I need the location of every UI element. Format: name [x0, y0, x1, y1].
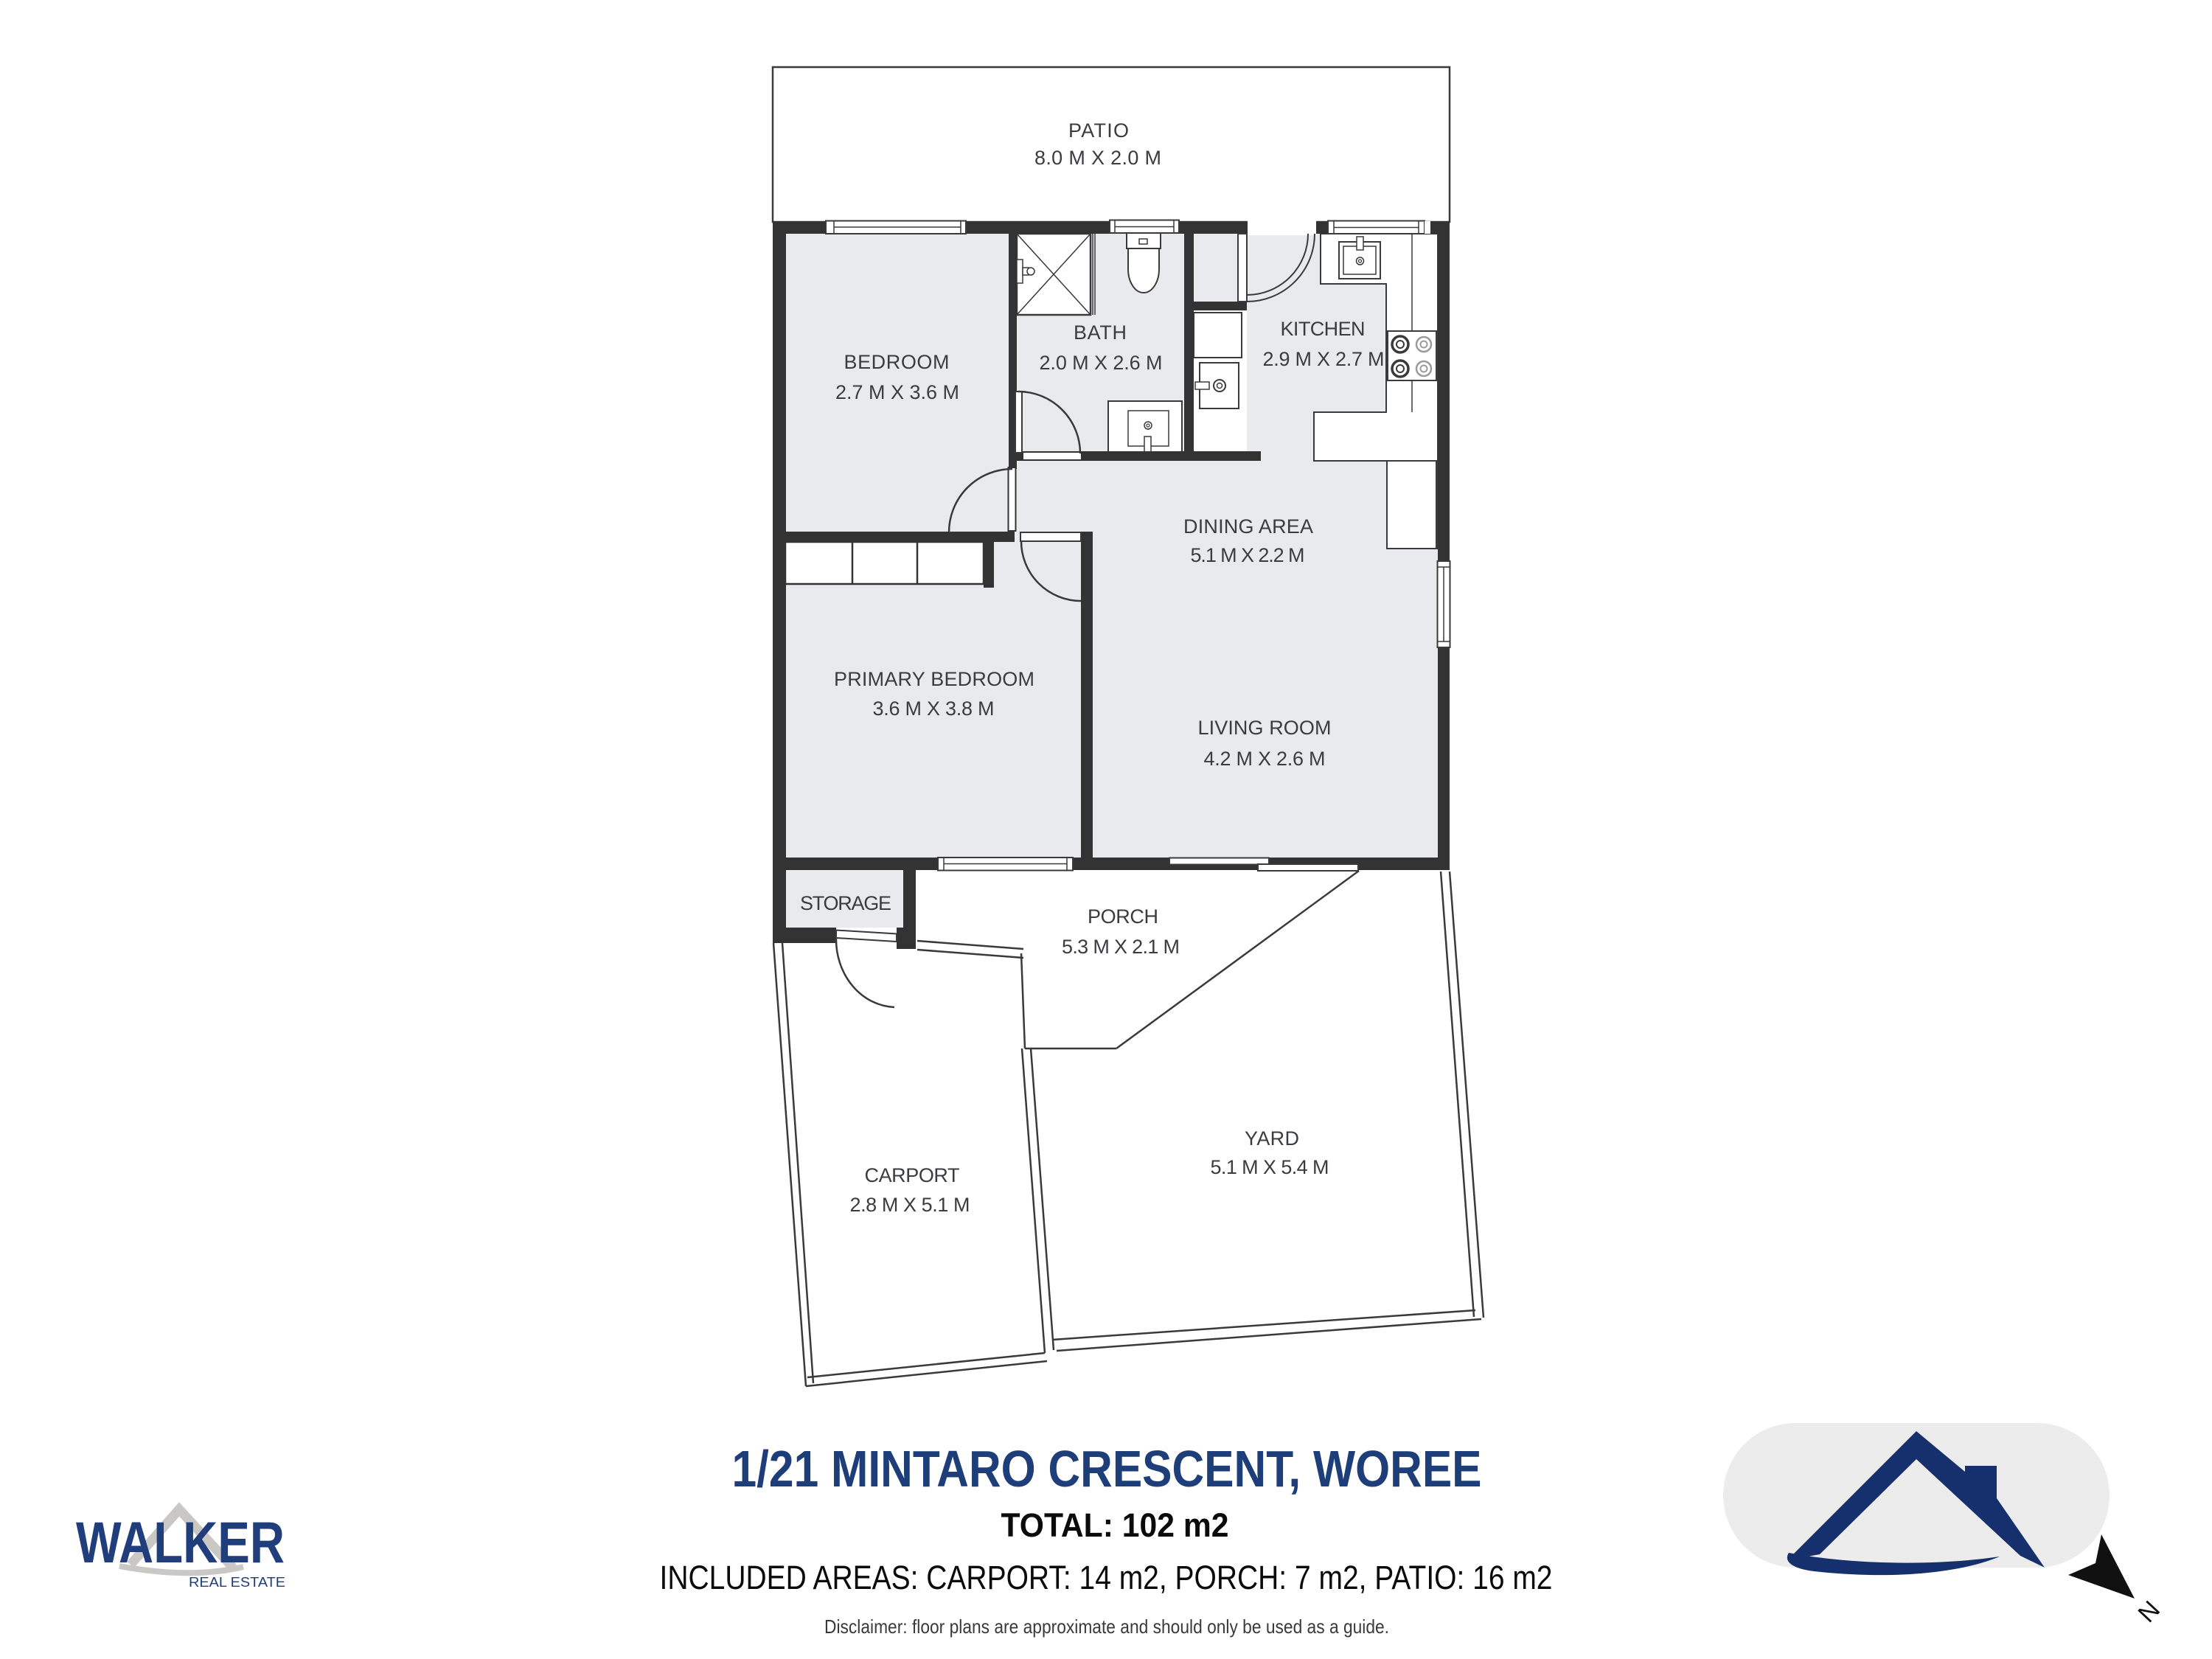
svg-text:REAL ESTATE: REAL ESTATE: [189, 1575, 285, 1590]
svg-text:YARD: YARD: [1245, 1127, 1299, 1150]
svg-text:2.9 M X 2.7 M: 2.9 M X 2.7 M: [1263, 348, 1385, 370]
svg-text:BEDROOM: BEDROOM: [844, 351, 950, 373]
svg-text:INCLUDED AREAS: CARPORT: 14 m2: INCLUDED AREAS: CARPORT: 14 m2, PORCH: 7…: [660, 1559, 1553, 1596]
svg-text:2.7 M X 3.6 M: 2.7 M X 3.6 M: [835, 381, 959, 403]
svg-text:KITCHEN: KITCHEN: [1281, 318, 1366, 340]
svg-text:2.8 M X 5.1 M: 2.8 M X 5.1 M: [850, 1194, 970, 1216]
svg-text:2.0 M X 2.6 M: 2.0 M X 2.6 M: [1040, 352, 1163, 374]
svg-text:WALKER: WALKER: [76, 1509, 285, 1575]
svg-text:STORAGE: STORAGE: [800, 892, 891, 914]
svg-text:TOTAL: 102 m2: TOTAL: 102 m2: [1001, 1506, 1229, 1544]
svg-text:4.2 M X 2.6 M: 4.2 M X 2.6 M: [1204, 748, 1326, 770]
svg-text:5.1 M X 2.2 M: 5.1 M X 2.2 M: [1191, 544, 1305, 566]
svg-text:5.3 M X 2.1 M: 5.3 M X 2.1 M: [1062, 936, 1180, 958]
svg-text:BATH: BATH: [1074, 321, 1127, 344]
svg-text:LIVING ROOM: LIVING ROOM: [1198, 717, 1332, 739]
svg-text:PRIMARY BEDROOM: PRIMARY BEDROOM: [834, 668, 1034, 690]
svg-text:DINING AREA: DINING AREA: [1183, 515, 1313, 538]
svg-text:Disclaimer: floor plans are ap: Disclaimer: floor plans are approximate …: [824, 1615, 1389, 1638]
svg-text:PORCH: PORCH: [1088, 905, 1158, 928]
svg-text:PATIO: PATIO: [1068, 119, 1129, 142]
svg-text:CARPORT: CARPORT: [865, 1164, 960, 1186]
svg-text:5.1 M X 5.4 M: 5.1 M X 5.4 M: [1211, 1156, 1329, 1178]
svg-text:3.6 M X 3.8 M: 3.6 M X 3.8 M: [873, 698, 995, 720]
svg-text:8.0 M X 2.0 M: 8.0 M X 2.0 M: [1034, 147, 1161, 169]
svg-text:1/21 MINTARO CRESCENT, WOREE: 1/21 MINTARO CRESCENT, WOREE: [732, 1440, 1482, 1498]
